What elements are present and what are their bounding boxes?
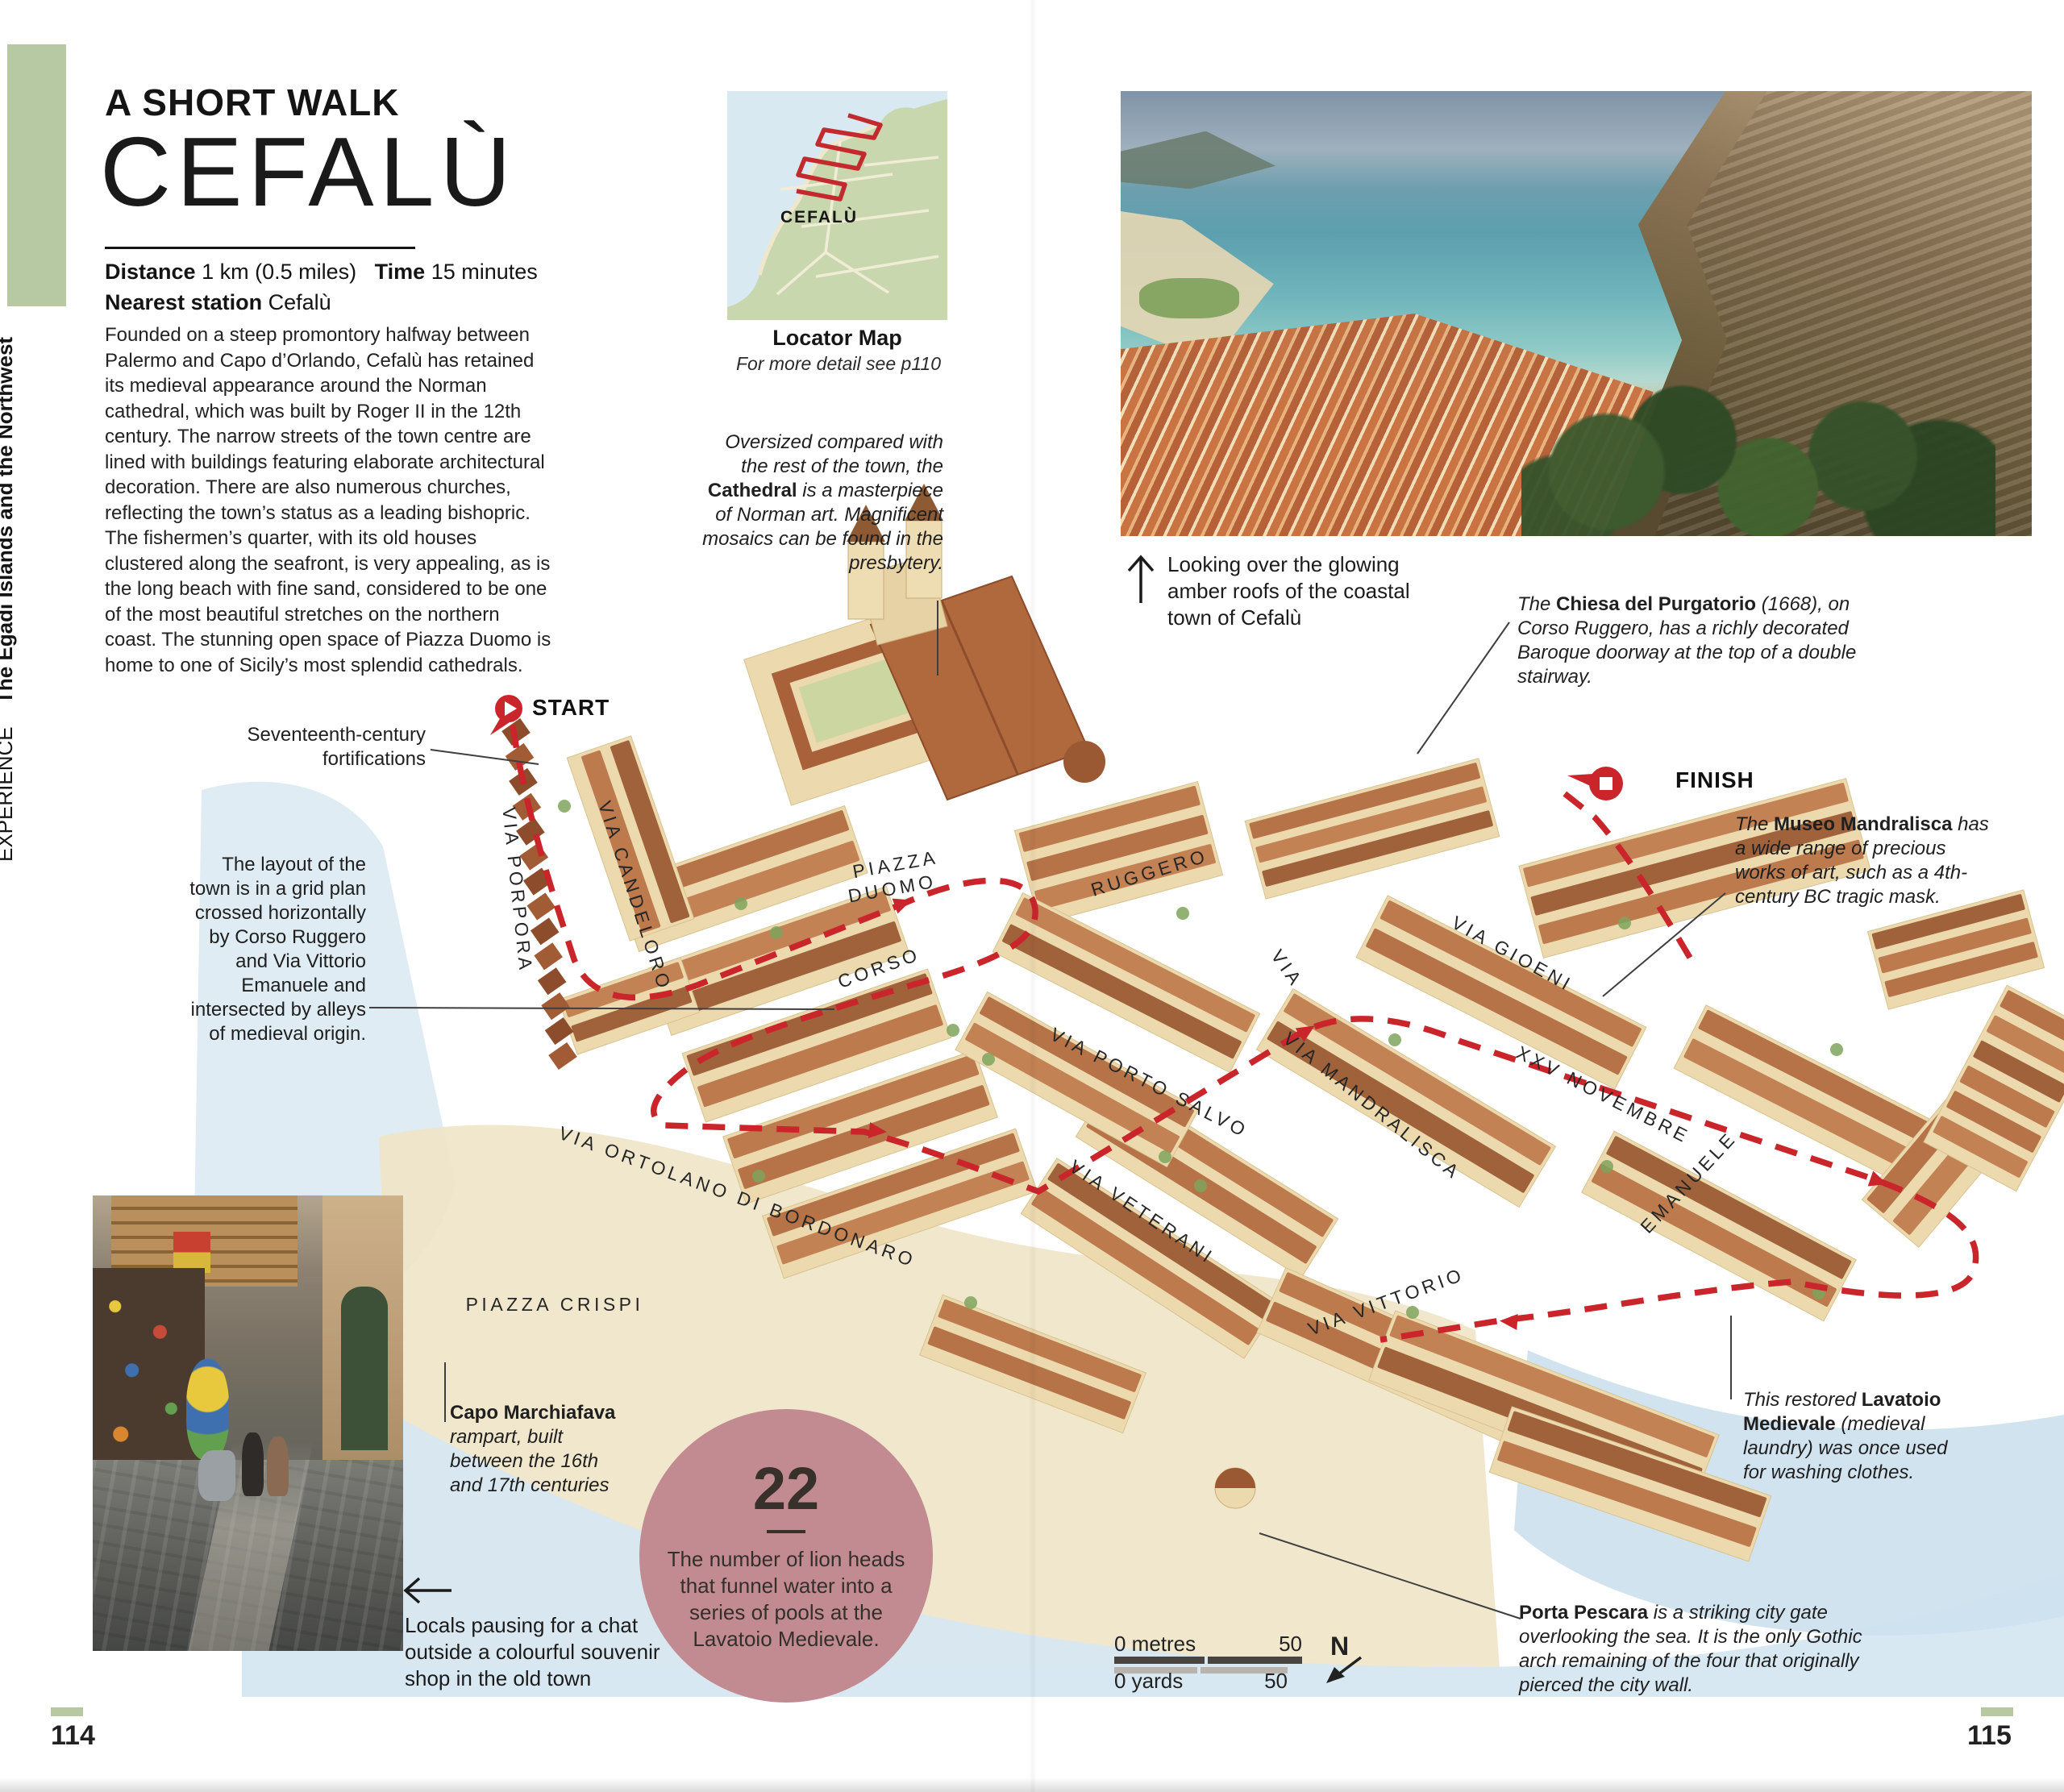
locator-map: CEFALÙ bbox=[727, 91, 947, 320]
bush bbox=[734, 897, 747, 910]
annotation-text: Oversized compared with the rest of the … bbox=[725, 431, 943, 477]
fact-text: The number of lion heads that funnel wat… bbox=[665, 1546, 907, 1653]
page-number-left: 114 bbox=[51, 1720, 95, 1752]
finish-label: FINISH bbox=[1675, 767, 1754, 793]
souvenir-shop-photo bbox=[93, 1195, 403, 1651]
photo-green-field bbox=[1139, 278, 1239, 318]
pedestrian-figure bbox=[267, 1437, 289, 1495]
bush bbox=[1406, 1306, 1419, 1319]
locator-title: Locator Map bbox=[727, 326, 947, 351]
photo-caption: Looking over the glowing amber roofs of … bbox=[1167, 551, 1417, 631]
left-arrow-icon bbox=[402, 1574, 455, 1607]
walk-info: Distance 1 km (0.5 miles) Time 15 minute… bbox=[105, 256, 621, 318]
distance-value: 1 km (0.5 miles) bbox=[202, 260, 356, 284]
route-arrow bbox=[1499, 1312, 1517, 1329]
city-block bbox=[1245, 759, 1500, 899]
porta-pescara-tower bbox=[1215, 1468, 1255, 1508]
cefalu-photo bbox=[1121, 91, 2032, 536]
scale-yards-label: 0 yards bbox=[1114, 1669, 1183, 1693]
bush bbox=[947, 1024, 959, 1037]
walk-info-line1: Distance 1 km (0.5 miles) Time 15 minute… bbox=[105, 256, 621, 287]
start-label: START bbox=[532, 695, 610, 721]
bush bbox=[1600, 1160, 1613, 1173]
annotation-bold: Chiesa del Purgatorio bbox=[1556, 593, 1756, 615]
annotation-text: The bbox=[1735, 813, 1774, 835]
time-value: 15 minutes bbox=[431, 260, 538, 284]
city-block bbox=[559, 958, 700, 1054]
up-arrow-icon bbox=[1124, 553, 1158, 606]
page-gutter bbox=[1029, 0, 1037, 1792]
walk-info-line2: Nearest station Cefalù bbox=[105, 287, 621, 318]
time-label: Time bbox=[375, 260, 426, 284]
photo-headland bbox=[1121, 131, 1275, 189]
intro-paragraph: Founded on a steep promontory halfway be… bbox=[105, 322, 553, 678]
bush bbox=[752, 1170, 765, 1183]
fortification-segment bbox=[538, 967, 567, 995]
annotation-town-layout: The layout of the town is in a grid plan… bbox=[179, 853, 366, 1046]
annotation-cathedral: Oversized compared with the rest of the … bbox=[693, 430, 943, 576]
bush bbox=[558, 800, 571, 813]
page-number-bar bbox=[1981, 1707, 2013, 1716]
finish-pin-icon bbox=[1567, 767, 1623, 800]
annotation-bold: Porta Pescara bbox=[1519, 1602, 1648, 1624]
annotation-bold: Capo Marchiafava bbox=[450, 1401, 623, 1425]
scooter bbox=[198, 1450, 235, 1500]
page-number-right: 115 bbox=[1967, 1720, 2012, 1752]
shop-caption: Locals pausing for a chat outside a colo… bbox=[405, 1612, 687, 1692]
bush bbox=[982, 1053, 995, 1066]
locator-map-graphic: CEFALÙ bbox=[727, 91, 947, 320]
bush bbox=[1830, 1043, 1843, 1056]
annotation-text: This restored bbox=[1743, 1389, 1862, 1411]
photo-trees bbox=[1521, 376, 1995, 536]
station-label: Nearest station bbox=[105, 290, 262, 314]
distance-label: Distance bbox=[105, 260, 196, 284]
station-value: Cefalù bbox=[268, 290, 331, 314]
scale-yards-value: 50 bbox=[1264, 1669, 1288, 1693]
annotation-purgatorio: The Chiesa del Purgatorio (1668), on Cor… bbox=[1517, 592, 1866, 689]
annotation-fortifications: Seventeenth-century fortifications bbox=[232, 723, 426, 771]
bush bbox=[964, 1296, 977, 1309]
fortification-segment bbox=[548, 1042, 577, 1070]
annotation-bold: Museo Mandralisca bbox=[1774, 813, 1952, 835]
sidebar-region-label: The Egadi Islands and the Northwest bbox=[0, 337, 18, 704]
bush bbox=[1159, 1150, 1171, 1163]
north-label: N bbox=[1330, 1632, 1349, 1661]
annotation-lavatoio: This restored Lavatoio Medievale (mediev… bbox=[1743, 1388, 1961, 1485]
fact-number: 22 bbox=[753, 1459, 819, 1519]
locator-town-label: CEFALÙ bbox=[780, 207, 858, 227]
bush bbox=[1388, 1033, 1401, 1046]
bush bbox=[770, 926, 783, 939]
shop-flag bbox=[173, 1232, 210, 1273]
page-title: CEFALÙ bbox=[100, 123, 517, 221]
pedestrian-figure bbox=[242, 1432, 264, 1496]
bush bbox=[1176, 907, 1189, 920]
annotation-text: The bbox=[1517, 593, 1556, 615]
fortification-segment bbox=[534, 942, 563, 970]
fact-divider bbox=[767, 1530, 805, 1533]
scale-metres-value: 50 bbox=[1279, 1632, 1302, 1656]
annotation-mandralisca: The Museo Mandralisca has a wide range o… bbox=[1735, 813, 2001, 909]
sidebar-tab bbox=[7, 44, 66, 306]
title-rule bbox=[105, 247, 415, 249]
annotation-text: rampart, built between the 16th and 17th… bbox=[450, 1426, 609, 1496]
scale-metres-label: 0 metres bbox=[1114, 1632, 1196, 1656]
guidebook-spread: VIA PORPORA VIA CANDELORO PIAZZA DUOMO C… bbox=[0, 0, 2064, 1792]
annotation-pescara: Porta Pescara is a striking city gate ov… bbox=[1519, 1601, 1878, 1698]
annotation-marchiafava: Capo Marchiafavarampart, built between t… bbox=[450, 1401, 623, 1498]
bush bbox=[1194, 1179, 1207, 1192]
sidebar-section-label: EXPERIENCE bbox=[0, 726, 18, 862]
page-number-bar bbox=[51, 1707, 83, 1716]
shop-green-door bbox=[341, 1287, 388, 1450]
annotation-bold: Cathedral bbox=[708, 480, 797, 501]
locator-note: For more detail see p110 bbox=[709, 353, 967, 375]
shop-vase bbox=[186, 1359, 230, 1459]
fortification-segment bbox=[531, 917, 560, 945]
street-label: PIAZZA CRISPI bbox=[466, 1294, 644, 1315]
street-label: VIA bbox=[1267, 946, 1307, 991]
bush bbox=[1618, 917, 1631, 929]
